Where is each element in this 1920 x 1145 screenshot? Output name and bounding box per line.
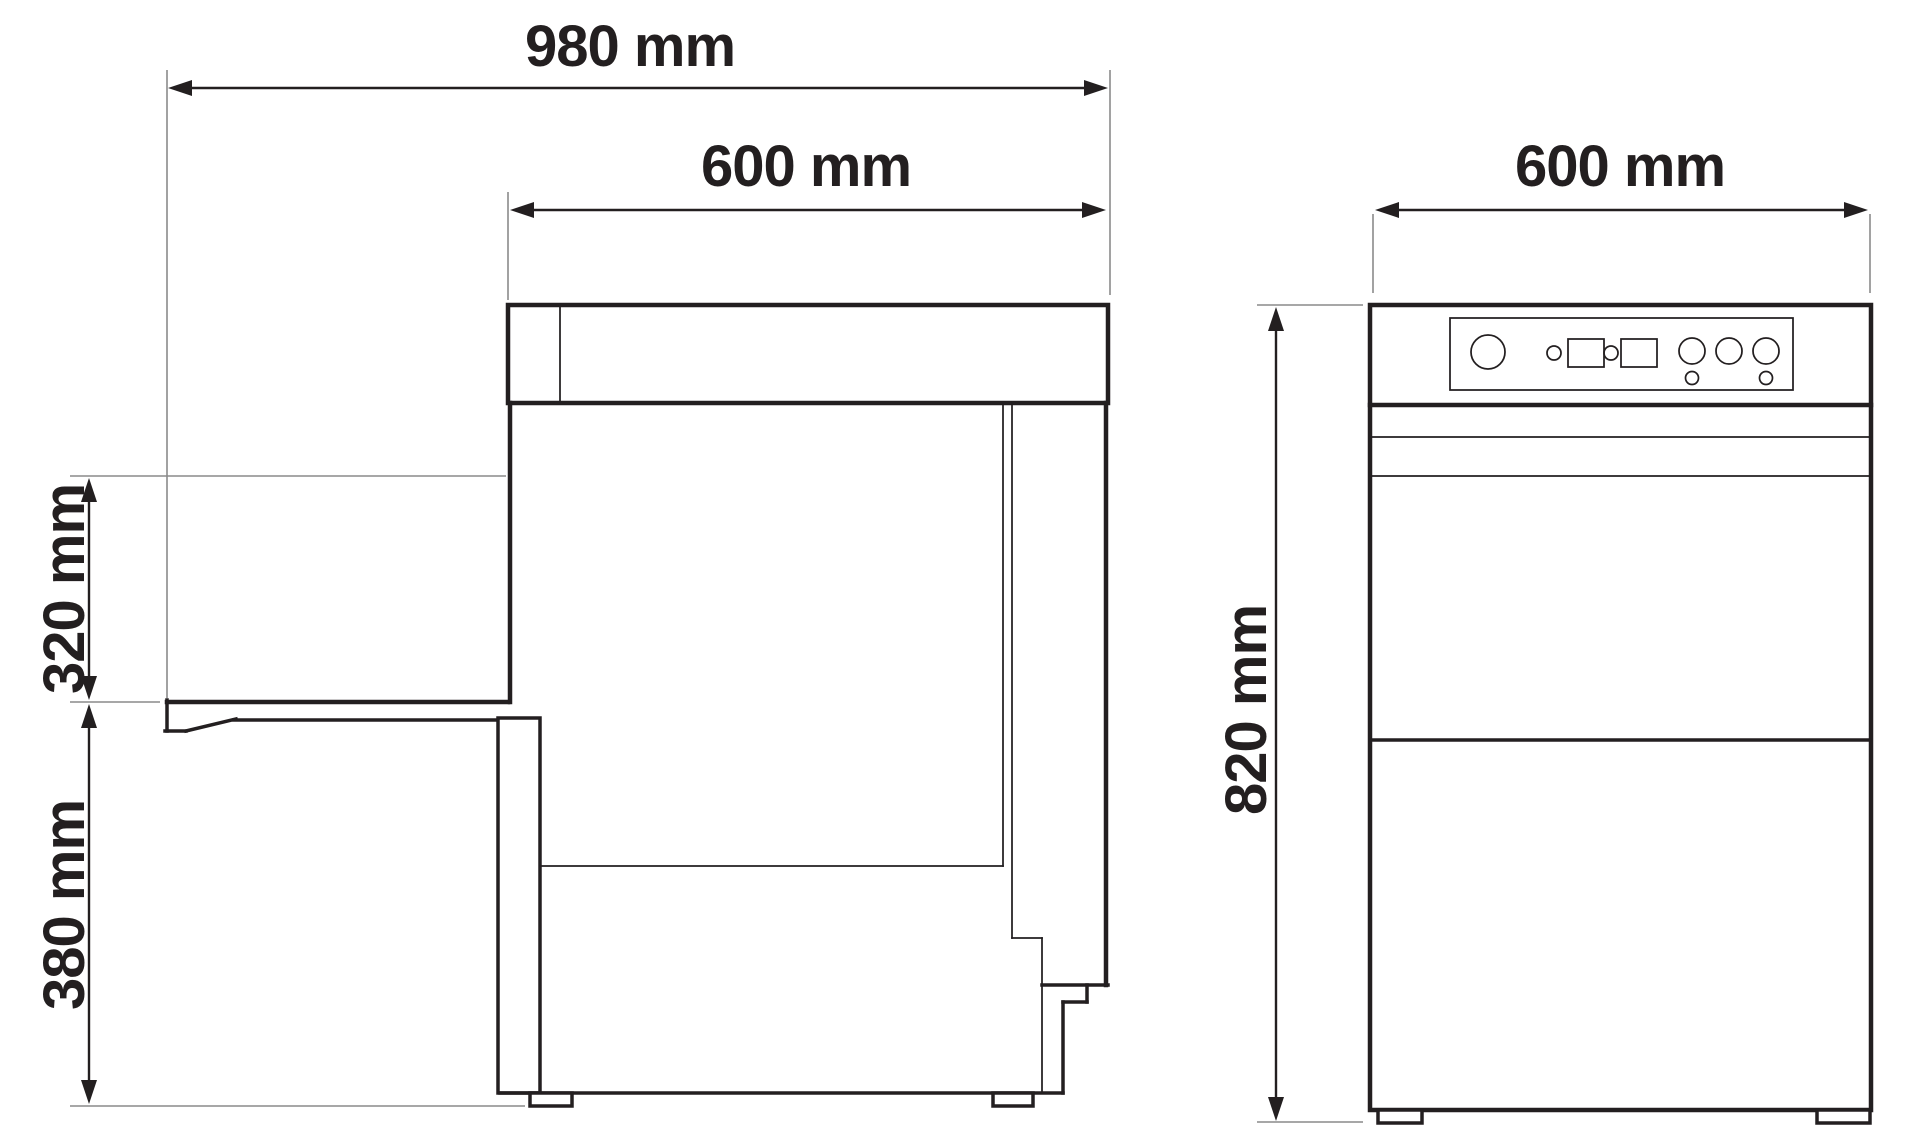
front-view: 600 mm 820 mm [1214,134,1871,1123]
rear-foot [993,1093,1033,1106]
dimension-label: 600 mm [1515,134,1725,199]
dimension-opening-height: 320 mm [32,478,97,700]
side-view: 980 mm 600 mm 320 mm 380 mm [32,14,1110,1106]
dimension-overall-depth: 980 mm [168,14,1108,96]
arrowhead-bottom [81,1080,97,1104]
front-body-outline [1370,305,1871,1110]
front-view-machine [1370,305,1871,1123]
dimension-label: 820 mm [1214,605,1279,815]
dimension-width: 600 mm [1375,134,1868,218]
arrowhead-left [168,80,192,96]
arrowhead-right [1844,202,1868,218]
arrowhead-left [1375,202,1399,218]
top-cap [508,305,1108,403]
flap-hook-diagonal [186,719,236,731]
front-foot [530,1093,572,1106]
drawing-canvas: 980 mm 600 mm 320 mm 380 mm [0,0,1920,1145]
arrowhead-left [510,202,534,218]
dishwasher-dimension-drawing: 980 mm 600 mm 320 mm 380 mm [0,0,1920,1145]
base-front-panel [498,718,540,1093]
rear-step-profile [1042,985,1108,1093]
arrowhead-bottom [1268,1097,1284,1121]
dimension-height: 820 mm [1214,307,1284,1121]
arrowhead-top [81,704,97,728]
dimension-label: 980 mm [525,14,735,79]
dimension-base-height: 380 mm [32,704,97,1104]
arrowhead-right [1082,202,1106,218]
arrowhead-top [1268,307,1284,331]
dimension-label: 600 mm [701,134,911,199]
dimension-label: 380 mm [32,800,97,1010]
dimension-label: 320 mm [32,484,97,694]
front-left-foot [1378,1110,1422,1123]
dimension-body-depth: 600 mm [510,134,1106,218]
arrowhead-right [1084,80,1108,96]
front-right-foot [1817,1110,1870,1123]
open-door-flap [165,700,508,731]
side-view-machine [165,305,1108,1106]
